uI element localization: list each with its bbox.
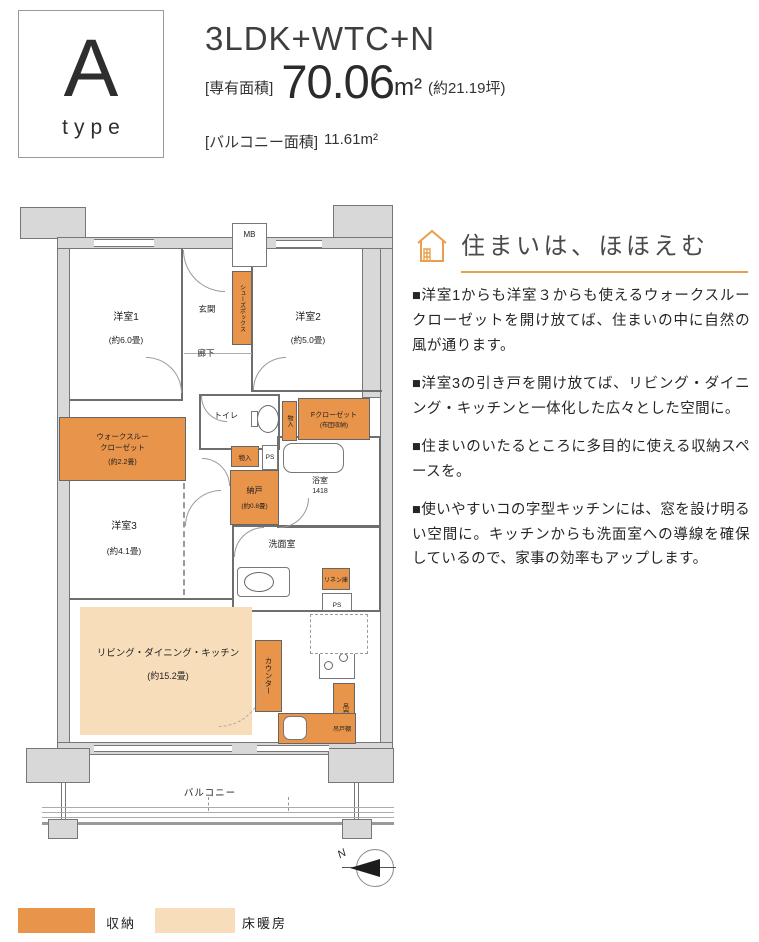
storage-strip-label: 物入 [285,415,294,427]
linen-closet: リネン庫 [322,568,350,590]
meter-box: MB [232,223,267,267]
washbasin-bowl [244,572,274,592]
feature-heading: 住まいは、ほほえむ [461,226,748,273]
pipe-space-upper: PS [262,445,278,470]
partition-line [69,598,233,600]
feature-paragraph: ■洋室1からも洋室３からも使えるウォークスルークローゼットを開け放てば、住まいの… [412,284,750,359]
entrance-label: 玄関 [186,303,228,315]
ps-label: PS [266,454,275,461]
railing-post [342,819,372,839]
storeroom: 納戸 (約0.8畳) [230,470,279,525]
pillar [328,748,394,783]
linen-label: リネン庫 [324,575,348,584]
room-name: バルコニー [170,785,250,799]
bath-label: 浴室 1418 [292,475,348,495]
wtc-size: (約2.2畳) [108,457,136,467]
room-name: 洋室2 [260,308,356,323]
exclusive-area-line: [専有面積] 70.06 m² (約21.19坪) [205,60,505,105]
toilet-fixture [257,405,279,433]
window [276,240,322,248]
room-name: トイレ [202,410,250,421]
door-arc [253,357,286,390]
legend-storage-swatch [18,908,95,933]
area-tsubo: (約21.19坪) [428,77,506,105]
balcony-area-line: [バルコニー面積] 11.61m² [205,131,378,152]
hanging-cabinet-label: 吊戸棚 [333,724,351,733]
stove-burner [324,661,333,670]
window [94,239,154,247]
balcony-side-wall [61,783,66,821]
wall-segment [380,248,393,748]
door-arc-dashed [218,681,264,727]
compass: N [340,846,398,894]
door-arc [183,250,225,292]
room-label-bedroom1: 洋室1 (約6.0畳) [78,308,174,346]
balcony-divider-dashed [208,797,209,811]
bath-size: 1418 [292,488,348,495]
room-size: (約6.0畳) [78,334,174,346]
type-badge: A type [18,10,164,158]
mb-label: MB [244,230,256,239]
window [257,745,329,752]
stove-burner [339,653,348,662]
room-size: (約4.1畳) [76,545,172,557]
plan-name: 3LDK+WTC+N [205,20,435,58]
washroom-label: 洗面室 [246,537,318,550]
legend-storage-label: 収納 [106,913,136,932]
room-size: (約15.2畳) [88,669,248,682]
fridge-space [310,614,368,654]
door-arc [185,490,221,526]
room-label-bedroom2: 洋室2 (約5.0畳) [260,308,356,346]
area-unit: m² [394,74,422,105]
balcony-label: バルコニー [170,785,250,799]
futon-closet-label: Fクローゼット [311,410,357,420]
compass-arrow [350,859,380,877]
area-label: [専有面積] [205,77,273,105]
storage-box: 物入 [231,446,259,467]
room-name: リビング・ダイニング・キッチン [88,645,248,659]
ldk-label: リビング・ダイニング・キッチン (約15.2畳) [88,645,248,682]
area-value: 70.06 [281,60,394,105]
sliding-door-dashed [183,483,185,595]
room-name: 玄関 [186,303,228,315]
room-size: (約5.0畳) [260,334,356,346]
legend: 収納 床暖房 [0,905,380,937]
railing-line [42,812,394,813]
wall-segment [362,248,381,398]
storeroom-label: 納戸 [247,485,263,496]
walk-through-closet: ウォークスルー クローゼット (約2.2畳) [59,417,186,481]
type-word: type [56,116,126,140]
storage-box-label: 物入 [239,452,252,462]
room-name: 洗面室 [246,537,318,550]
counter-label: カウンター [263,657,274,695]
type-letter: A [64,28,119,110]
sink-fixture [283,716,307,740]
room-name: 廊下 [186,347,226,359]
futon-closet-sub: (布団収納) [320,420,348,429]
north-label: N [336,847,349,861]
railing-post [48,819,78,839]
balcony-side-wall [354,783,359,821]
feature-paragraph: ■洋室3の引き戸を開け放てば、リビング・ダイニング・キッチンと一体化した広々とし… [412,372,750,422]
house-icon [412,226,452,266]
toilet-label: トイレ [202,410,250,421]
door-arc [202,458,230,486]
room-name: 浴室 [292,475,348,486]
legend-heating-label: 床暖房 [242,913,287,932]
floor-plan: MB シューズボックス 物入 Fクローゼット (布団収納) 物入 PS 納戸 (… [20,205,400,877]
feature-paragraphs: ■洋室1からも洋室３からも使えるウォークスルークローゼットを開け放てば、住まいの… [412,284,750,585]
railing-line [42,807,394,808]
room-name: 洋室1 [78,308,174,323]
partition-line [69,399,183,401]
room-label-bedroom3: 洋室3 (約4.1畳) [76,517,172,557]
pillar [26,748,90,783]
room-name: 洋室3 [76,517,172,532]
wtc-label-2: クローゼット [100,442,145,453]
balcony-area-label: [バルコニー面積] [205,131,318,152]
partition-line [181,248,183,401]
toilet-tank [251,411,258,427]
wall-segment [333,205,393,239]
corridor-label: 廊下 [186,347,226,359]
storeroom-size: (約0.8畳) [241,500,267,510]
partition-line [251,390,382,392]
pipe-space-lower: PS [322,593,352,611]
shoes-box-label: シューズボックス [238,284,247,332]
wtc-label-1: ウォークスルー [96,431,148,442]
window [94,745,232,752]
wall-segment [20,207,86,239]
balcony-divider-dashed [288,797,289,811]
feature-paragraph: ■使いやすいコの字型キッチンには、窓を設け明るい空間に。キッチンからも洗面室への… [412,498,750,573]
storage-strip: 物入 [282,401,297,441]
wall-segment [57,248,70,748]
feature-heading-row: 住まいは、ほほえむ [412,226,748,273]
legend-heating-swatch [155,908,235,933]
ps-label: PS [333,602,342,609]
bathtub-fixture [283,443,344,473]
balcony-area-value: 11.61m² [324,131,378,152]
feature-paragraph: ■住まいのいたるところに多目的に使える収納スペースを。 [412,435,750,485]
shoes-box: シューズボックス [232,271,252,345]
futon-closet: Fクローゼット (布団収納) [298,398,370,440]
door-arc [146,357,182,393]
railing-line [42,817,394,818]
